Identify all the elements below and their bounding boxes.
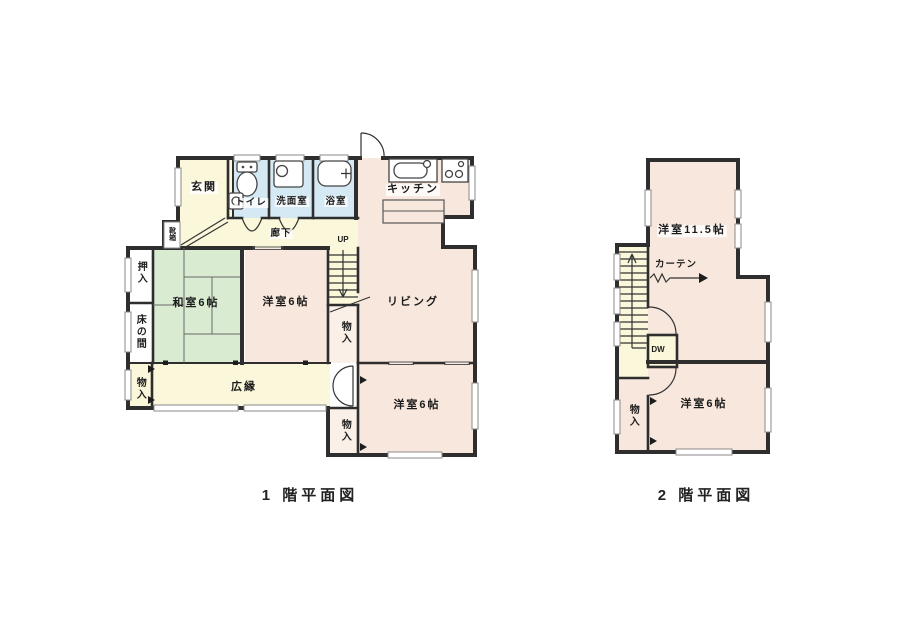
washbasin-icon <box>274 161 303 187</box>
floor2-caption: 2 階平面図 <box>657 488 756 504</box>
bathroom-label: 浴室 <box>324 197 347 207</box>
floorplan-page: 玄関 トイレ 洗面室 浴室 キッチン 廊下 UP 靴箱 押入 床の間 和室6帖 … <box>0 0 900 621</box>
hallway-label: 廊下 <box>269 229 292 239</box>
floor1-caption: 1 階平面図 <box>261 488 360 504</box>
floor2-main-room-label: 洋室11.5帖 <box>657 225 727 237</box>
kitchen-label: キッチン <box>386 184 440 196</box>
living-label: リビング <box>386 297 440 309</box>
genkan-label: 玄関 <box>190 182 218 194</box>
dw-label: DW <box>650 346 665 354</box>
toilet-icon <box>237 162 257 196</box>
entry-door-arc <box>361 133 384 158</box>
toilet-label: トイレ <box>234 198 268 208</box>
hiroen-label: 広縁 <box>230 382 258 394</box>
closet-left-label: 物入 <box>134 376 145 402</box>
kitchen-sink-icon <box>389 159 437 182</box>
floorplan-drawing <box>0 0 900 621</box>
stove-icon <box>442 159 468 182</box>
closet-stairs-label: 物入 <box>339 320 350 346</box>
youshitsu-se-label: 洋室6帖 <box>392 400 441 412</box>
up-label: UP <box>336 236 349 244</box>
washitsu-label: 和室6帖 <box>171 298 220 310</box>
washroom-label: 洗面室 <box>275 197 309 207</box>
tokonoma-label: 床の間 <box>134 313 145 351</box>
hiroen-fill <box>128 363 330 408</box>
closet-south-label: 物入 <box>339 418 350 444</box>
shoebox-label: 靴箱 <box>168 226 175 242</box>
youshitsu-center-label: 洋室6帖 <box>261 297 310 309</box>
hiroen-door-arc <box>333 366 353 406</box>
floor2-youshitsu-label: 洋室6帖 <box>679 399 728 411</box>
kitchen-counter <box>383 200 444 223</box>
curtain-label: カーテン <box>654 260 698 270</box>
oshiire-label: 押入 <box>135 260 146 286</box>
bathtub-icon <box>318 161 351 186</box>
floor2-closet-label: 物入 <box>627 403 638 429</box>
